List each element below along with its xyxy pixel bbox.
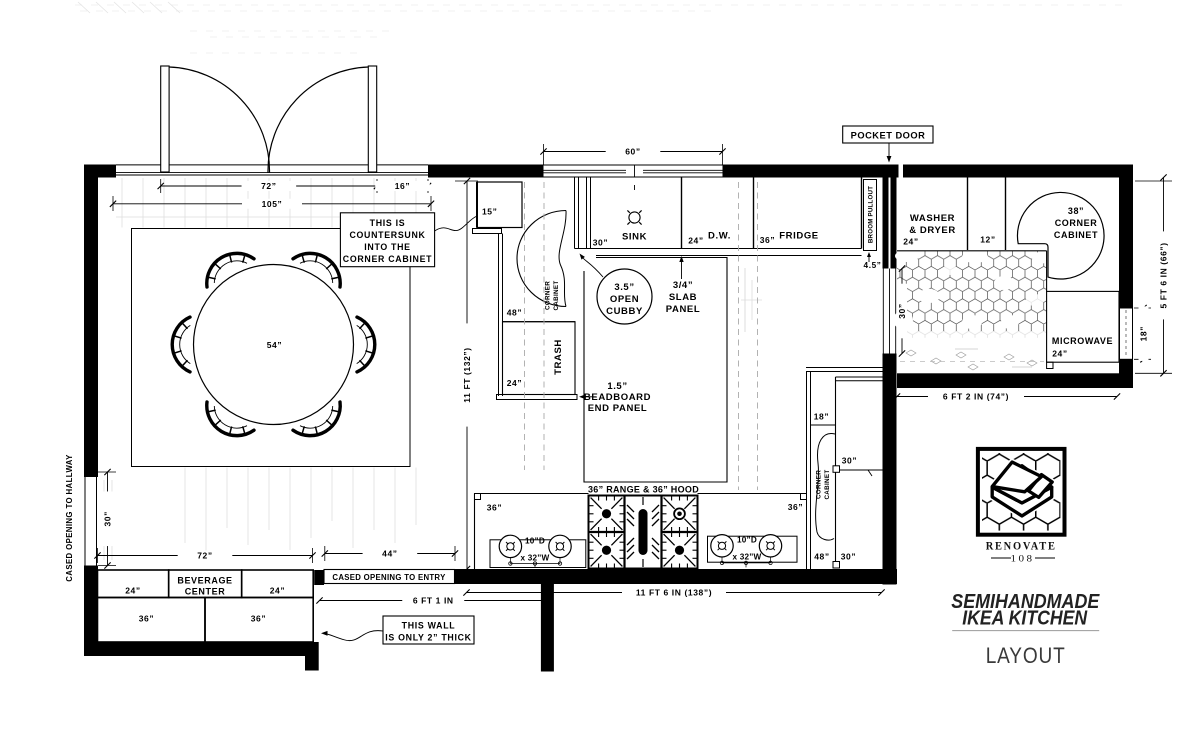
svg-text:18”: 18” xyxy=(814,412,830,422)
svg-text:54”: 54” xyxy=(267,340,283,350)
svg-text:CASED OPENING TO ENTRY: CASED OPENING TO ENTRY xyxy=(332,573,446,582)
svg-text:PANEL: PANEL xyxy=(666,304,701,315)
svg-text:30”: 30” xyxy=(842,456,858,466)
svg-text:1.5”: 1.5” xyxy=(607,381,627,392)
svg-text:CENTER: CENTER xyxy=(185,587,226,597)
svg-text:30”: 30” xyxy=(841,552,857,562)
svg-text:16”: 16” xyxy=(395,181,411,191)
svg-text:5 FT 6 IN (66”): 5 FT 6 IN (66”) xyxy=(1159,242,1169,308)
svg-text:108: 108 xyxy=(1011,554,1035,564)
svg-text:18”: 18” xyxy=(1139,326,1149,342)
svg-text:FRIDGE: FRIDGE xyxy=(779,231,819,242)
svg-text:D.W.: D.W. xyxy=(708,231,731,242)
svg-text:24”: 24” xyxy=(507,378,523,388)
svg-text:TRASH: TRASH xyxy=(553,339,564,375)
svg-text:COUNTERSUNK: COUNTERSUNK xyxy=(349,230,425,240)
svg-text:WASHER: WASHER xyxy=(910,213,955,224)
svg-text:24”: 24” xyxy=(1052,349,1068,359)
svg-text:72”: 72” xyxy=(197,551,213,561)
svg-text:36” RANGE & 36” HOOD: 36” RANGE & 36” HOOD xyxy=(588,485,699,495)
svg-text:LAYOUT: LAYOUT xyxy=(986,643,1066,668)
svg-text:SLAB: SLAB xyxy=(669,292,697,303)
svg-text:BEADBOARD: BEADBOARD xyxy=(584,392,651,403)
svg-text:24”: 24” xyxy=(688,236,704,246)
svg-text:11 FT 6 IN (138”): 11 FT 6 IN (138”) xyxy=(636,588,712,598)
svg-text:36”: 36” xyxy=(139,614,155,624)
svg-text:10”D: 10”D xyxy=(737,536,757,545)
svg-text:END PANEL: END PANEL xyxy=(588,403,648,414)
svg-text:6 FT 2 IN (74”): 6 FT 2 IN (74”) xyxy=(943,392,1009,402)
svg-text:IS ONLY 2” THICK: IS ONLY 2” THICK xyxy=(385,633,471,643)
svg-text:MICROWAVE: MICROWAVE xyxy=(1052,336,1113,346)
svg-text:24”: 24” xyxy=(903,237,919,247)
svg-text:RENOVATE: RENOVATE xyxy=(986,539,1057,553)
svg-text:CABINET: CABINET xyxy=(824,469,831,499)
svg-text:BROOM PULLOUT: BROOM PULLOUT xyxy=(868,186,875,243)
svg-text:x 32”W: x 32”W xyxy=(521,554,550,563)
svg-text:10”D: 10”D xyxy=(525,537,545,546)
svg-text:CORNER CABINET: CORNER CABINET xyxy=(343,254,432,264)
svg-text:30”: 30” xyxy=(593,238,609,248)
svg-text:CORNER: CORNER xyxy=(545,281,552,310)
svg-text:CORNER: CORNER xyxy=(816,470,823,499)
svg-text:4.5”: 4.5” xyxy=(864,261,882,270)
svg-text:105”: 105” xyxy=(262,199,283,209)
svg-text:48”: 48” xyxy=(814,552,830,562)
svg-text:CABINET: CABINET xyxy=(1054,230,1098,240)
svg-text:OPEN: OPEN xyxy=(610,294,639,305)
svg-text:6 FT 1 IN: 6 FT 1 IN xyxy=(413,596,454,606)
svg-text:30”: 30” xyxy=(103,511,113,527)
svg-text:INTO THE: INTO THE xyxy=(364,242,411,252)
svg-text:48”: 48” xyxy=(507,308,523,318)
svg-text:36”: 36” xyxy=(760,235,776,245)
svg-text:24”: 24” xyxy=(125,586,141,596)
svg-text:CUBBY: CUBBY xyxy=(606,306,643,317)
svg-text:x 32”W: x 32”W xyxy=(733,553,762,562)
svg-text:12”: 12” xyxy=(980,235,996,245)
svg-text:72”: 72” xyxy=(261,181,277,191)
svg-text:36”: 36” xyxy=(788,502,804,512)
svg-text:CORNER: CORNER xyxy=(1055,218,1098,228)
svg-text:3.5”: 3.5” xyxy=(614,282,634,293)
svg-text:36”: 36” xyxy=(487,503,503,513)
svg-text:36”: 36” xyxy=(251,614,267,624)
svg-text:IKEA KITCHEN: IKEA KITCHEN xyxy=(962,608,1087,630)
svg-text:38”: 38” xyxy=(1068,206,1084,216)
svg-text:CABINET: CABINET xyxy=(553,280,560,310)
svg-text:44”: 44” xyxy=(382,549,398,559)
svg-text:SINK: SINK xyxy=(622,232,647,243)
svg-text:24”: 24” xyxy=(270,586,286,596)
svg-text:60”: 60” xyxy=(625,147,641,157)
svg-text:THIS WALL: THIS WALL xyxy=(402,621,456,631)
svg-text:CASED OPENING TO HALLWAY: CASED OPENING TO HALLWAY xyxy=(65,454,74,582)
svg-text:BEVERAGE: BEVERAGE xyxy=(177,576,232,586)
svg-text:3/4”: 3/4” xyxy=(673,280,693,291)
svg-text:11 FT (132”): 11 FT (132”) xyxy=(462,347,472,402)
svg-text:& DRYER: & DRYER xyxy=(909,225,956,236)
svg-text:THIS IS: THIS IS xyxy=(370,218,406,228)
svg-text:POCKET DOOR: POCKET DOOR xyxy=(851,131,926,141)
svg-text:30”: 30” xyxy=(897,303,907,319)
svg-text:15”: 15” xyxy=(482,207,498,217)
